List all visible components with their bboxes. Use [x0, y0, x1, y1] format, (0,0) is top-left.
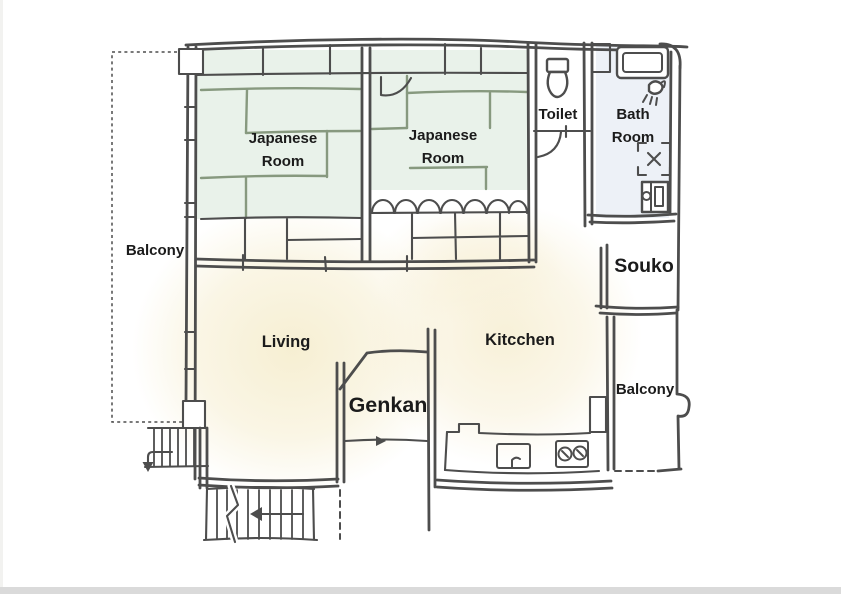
outer-wall-left	[186, 47, 188, 402]
floor-plan-drawing: Balcony Japanese Room Japanese Room Toil…	[0, 0, 841, 594]
counter-return	[590, 397, 606, 432]
outer-wall-right	[678, 66, 680, 310]
label-balcony-left: Balcony	[126, 242, 185, 259]
toilet-bowl	[548, 72, 568, 97]
bathtub-outer	[617, 47, 668, 78]
tatami-line	[246, 90, 247, 133]
label-japanese-room-2: Room	[422, 150, 465, 167]
japanese-room-2	[371, 50, 528, 190]
floor-plan-page: Balcony Japanese Room Japanese Room Toil…	[0, 0, 841, 594]
tatami-line	[372, 128, 407, 129]
souko-bottom-wall-inner	[600, 313, 676, 315]
label-japanese-room-1: Japanese	[249, 130, 317, 147]
washing-machine-icon	[642, 182, 668, 212]
label-genkan: Genkan	[349, 393, 428, 417]
bottom-page-edge	[0, 587, 841, 594]
balcony-hatch-box	[179, 49, 203, 74]
bathtub-icon	[617, 47, 668, 78]
tatami-floor	[371, 50, 528, 190]
left-page-edge	[0, 0, 3, 594]
label-japanese-room-2: Japanese	[409, 127, 477, 144]
label-bath-room: Bath	[616, 106, 649, 123]
label-japanese-room-1: Room	[262, 153, 305, 170]
label-toilet: Toilet	[539, 106, 578, 123]
stair-connector	[183, 401, 205, 428]
outer-wall-right-inner	[670, 52, 671, 214]
toilet-tank	[547, 59, 568, 72]
tatami-line	[410, 167, 487, 168]
label-kitchen: Kitcchen	[485, 331, 555, 349]
toilet-icon	[547, 59, 568, 97]
label-bath-room: Room	[612, 129, 655, 146]
floor-tints	[132, 203, 642, 495]
label-souko: Souko	[614, 255, 674, 277]
right-balcony-bottom-wall	[658, 469, 681, 471]
label-balcony-right: Balcony	[616, 381, 675, 398]
label-living: Living	[262, 333, 311, 351]
